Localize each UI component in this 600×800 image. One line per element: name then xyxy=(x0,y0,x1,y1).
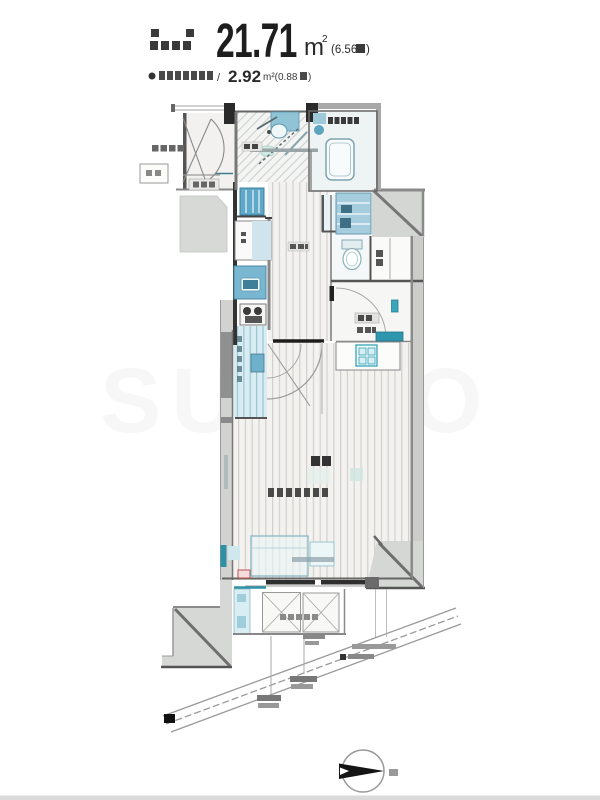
svg-text:2: 2 xyxy=(322,34,328,45)
svg-text:): ) xyxy=(366,44,370,56)
svg-text:(6.56: (6.56 xyxy=(331,44,357,56)
svg-text:21.71: 21.71 xyxy=(216,13,297,67)
svg-text:/: / xyxy=(217,72,221,84)
svg-text:): ) xyxy=(308,72,311,83)
svg-text:2.92: 2.92 xyxy=(228,67,261,86)
svg-text:m: m xyxy=(304,34,324,61)
svg-text:m²(0.88: m²(0.88 xyxy=(263,72,298,83)
